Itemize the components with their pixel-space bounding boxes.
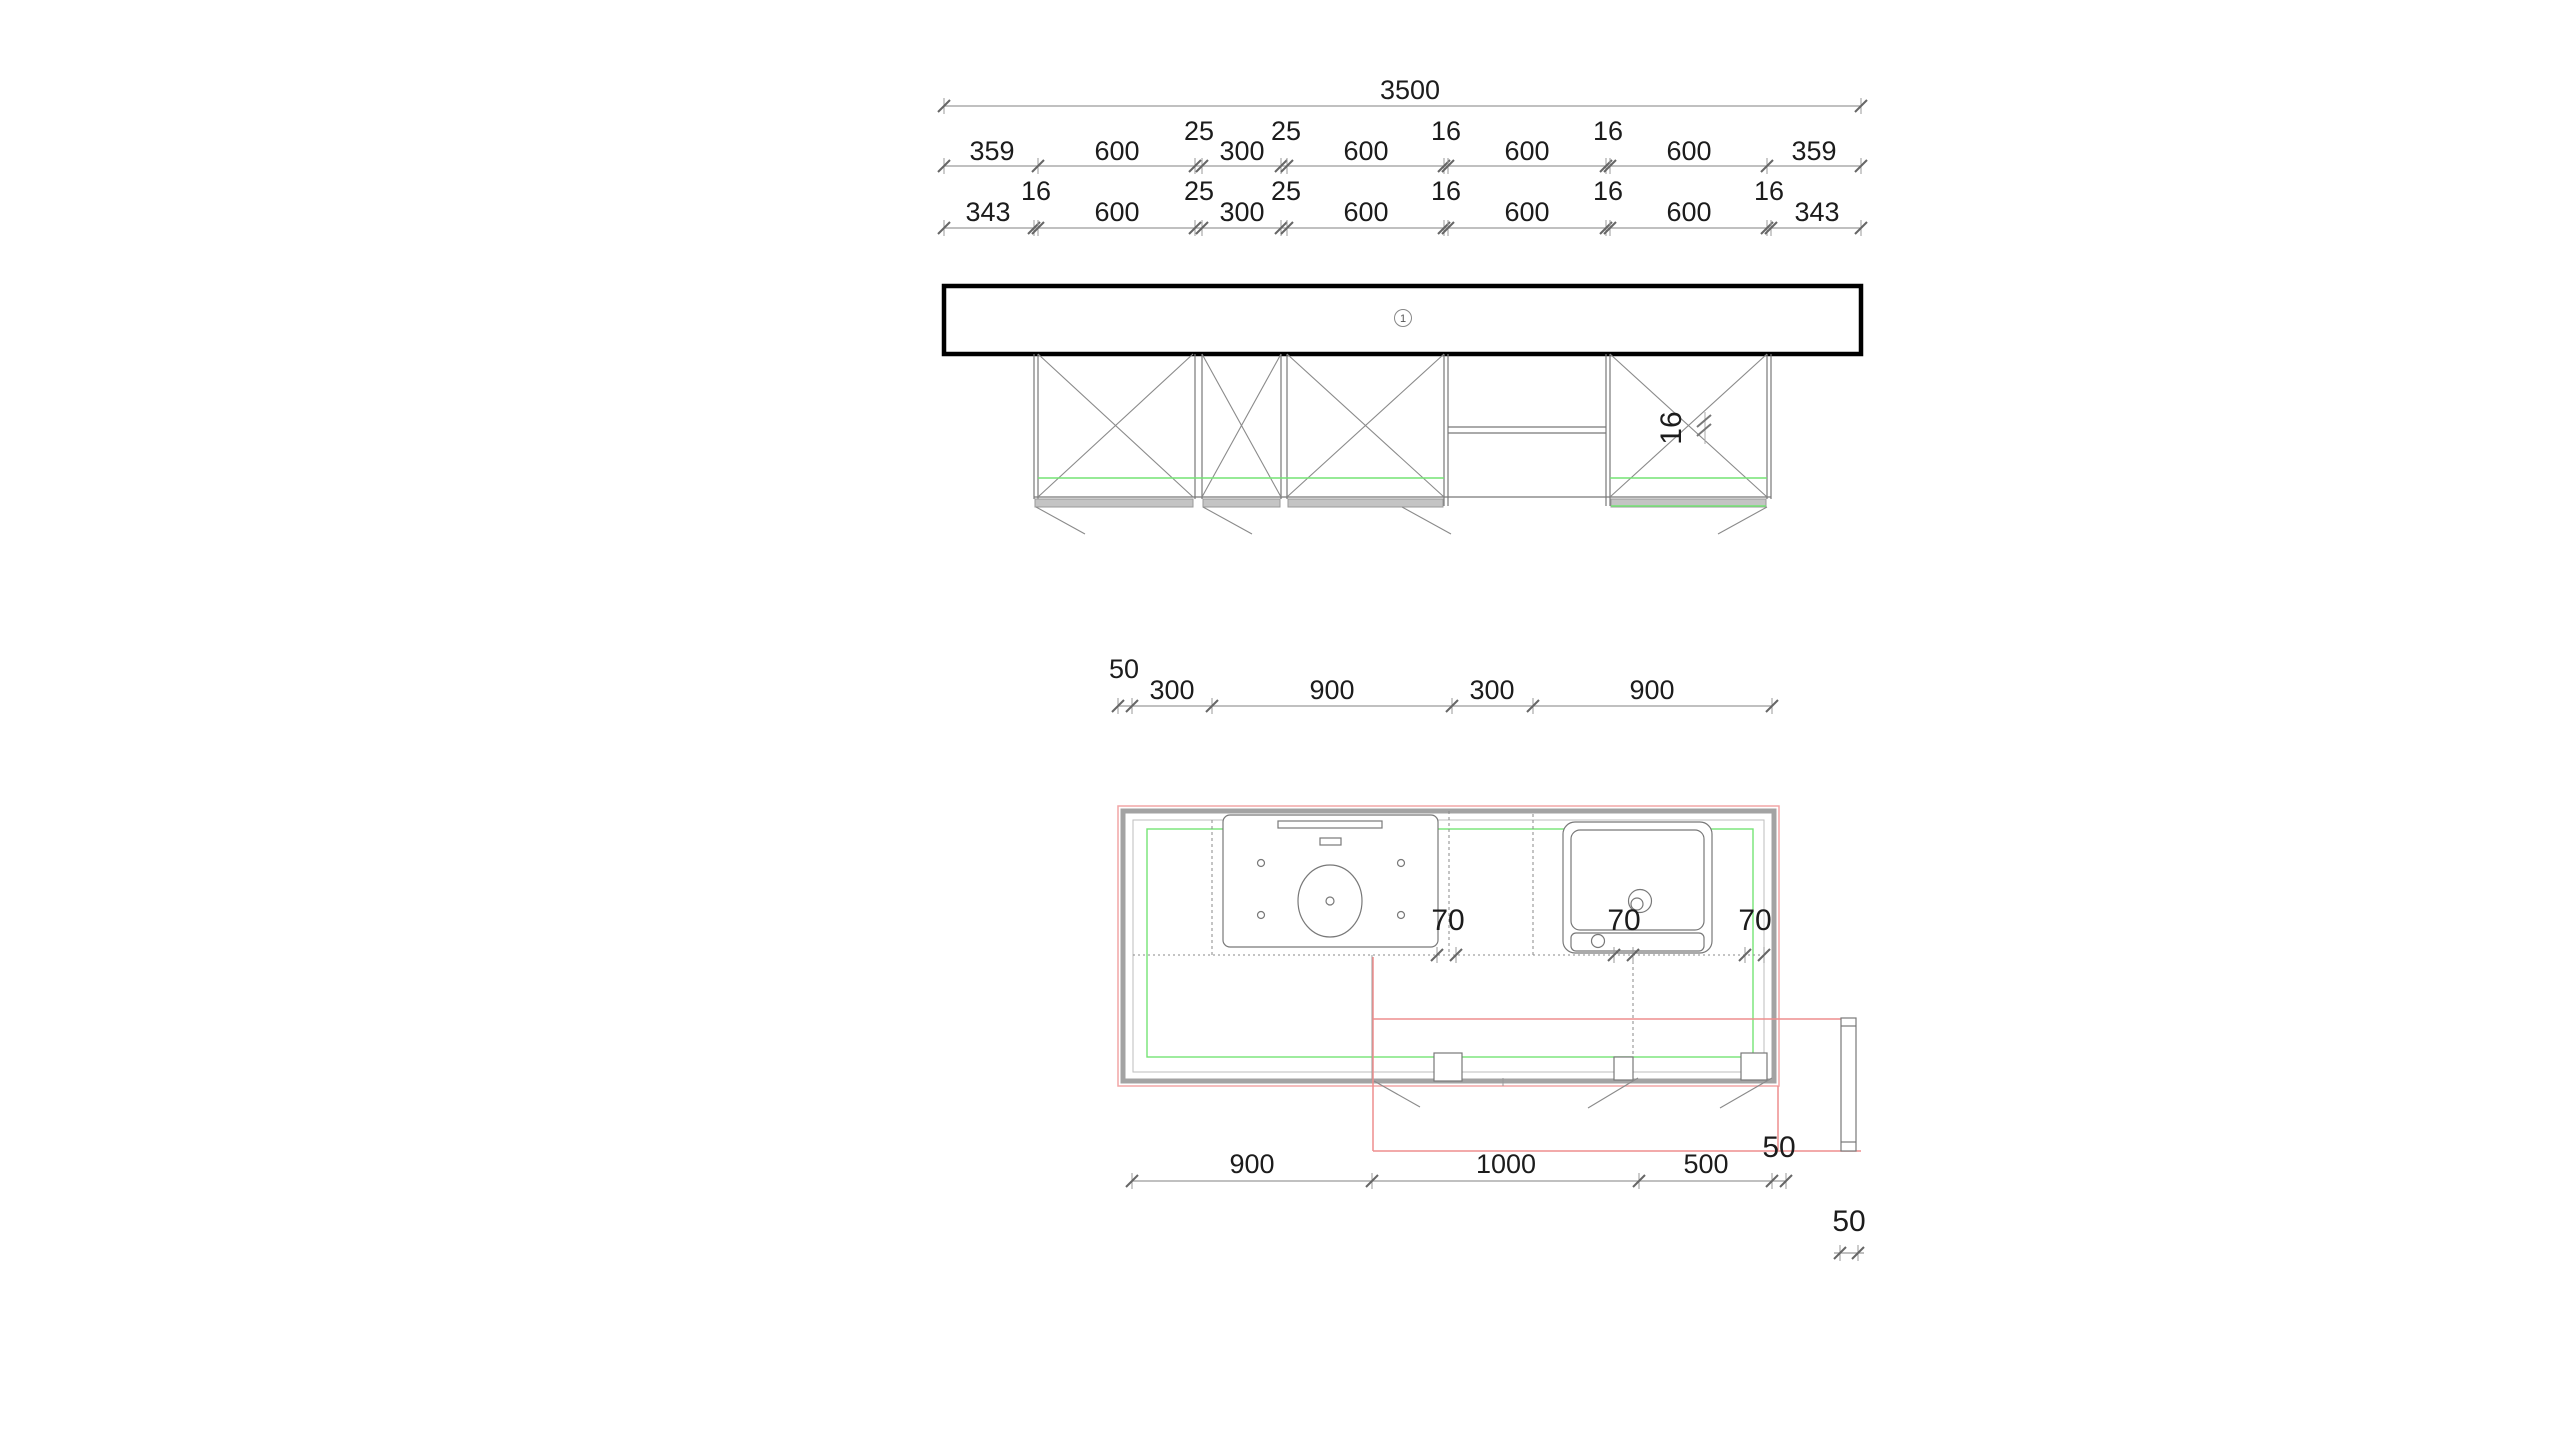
- panel-thickness-label: 16: [1655, 411, 1688, 444]
- dim-label-total: 3500: [1380, 75, 1440, 105]
- elevation-leader-lines: [1036, 507, 1767, 534]
- cad-drawing-page: 3500 359 600 25 300 25 600 16 600 16 600…: [0, 0, 2560, 1440]
- door-cross-cabinet-3: [1287, 354, 1444, 497]
- dim-label: 16: [1021, 176, 1051, 206]
- door-handle: [1434, 1053, 1462, 1081]
- door-handle: [1741, 1053, 1767, 1080]
- door-cross-cabinet-1: [1038, 354, 1193, 497]
- dim-label: 70: [1607, 904, 1640, 937]
- dim-label: 600: [1343, 136, 1388, 166]
- dim-label: 500: [1683, 1149, 1728, 1179]
- dim-label: 900: [1229, 1149, 1274, 1179]
- dim-label: 50: [1109, 654, 1139, 684]
- elevation-dimension-chains: 3500 359 600 25 300 25 600 16 600 16 600…: [938, 75, 1867, 236]
- dim-label: 16: [1431, 176, 1461, 206]
- dim-label: 300: [1149, 675, 1194, 705]
- dim-label: 600: [1094, 136, 1139, 166]
- dim-label: 25: [1271, 116, 1301, 146]
- plan-dimension-chain-top: 50 300 900 300 900: [1109, 654, 1778, 714]
- cooktop: [1223, 815, 1438, 947]
- dim-label: 600: [1343, 197, 1388, 227]
- side-panel-dimension: 50: [1832, 1205, 1865, 1261]
- dim-label: 300: [1469, 675, 1514, 705]
- dim-label: 900: [1629, 675, 1674, 705]
- dim-label: 16: [1431, 116, 1461, 146]
- dim-label: 1000: [1476, 1149, 1536, 1179]
- dim-label: 600: [1504, 136, 1549, 166]
- door-cross-cabinet-2: [1202, 354, 1281, 497]
- dim-label: 300: [1219, 197, 1264, 227]
- door-handle: [1614, 1057, 1633, 1080]
- dim-label: 343: [1794, 197, 1839, 227]
- dim-label: 16: [1593, 116, 1623, 146]
- dim-label: 359: [969, 136, 1014, 166]
- dim-label: 343: [965, 197, 1010, 227]
- dim-label: 70: [1738, 904, 1771, 937]
- door-cross-cabinet-4: [1610, 354, 1767, 497]
- open-shelf-section: [1448, 427, 1606, 433]
- dim-label: 70: [1431, 904, 1464, 937]
- dim-label: 25: [1271, 176, 1301, 206]
- dim-label: 600: [1504, 197, 1549, 227]
- dim-label: 25: [1184, 116, 1214, 146]
- dim-label: 50: [1762, 1131, 1795, 1164]
- dim-label: 16: [1593, 176, 1623, 206]
- cad-canvas: 3500 359 600 25 300 25 600 16 600 16 600…: [0, 0, 2560, 1440]
- dim-label: 600: [1666, 136, 1711, 166]
- side-panel-bar: [1841, 1018, 1856, 1151]
- dim-label: 600: [1094, 197, 1139, 227]
- elevation-view: 1: [944, 286, 1861, 534]
- section-marker-label: 1: [1400, 313, 1406, 325]
- dim-label: 16: [1754, 176, 1784, 206]
- dim-label: 50: [1832, 1205, 1865, 1238]
- dim-label: 359: [1791, 136, 1836, 166]
- dim-label: 25: [1184, 176, 1214, 206]
- dim-label: 300: [1219, 136, 1264, 166]
- plan-dimension-chain-bottom: 900 1000 500 50: [1126, 1131, 1796, 1189]
- dim-label: 600: [1666, 197, 1711, 227]
- plan-view: 70 70 70: [1118, 806, 1861, 1151]
- dim-label: 900: [1309, 675, 1354, 705]
